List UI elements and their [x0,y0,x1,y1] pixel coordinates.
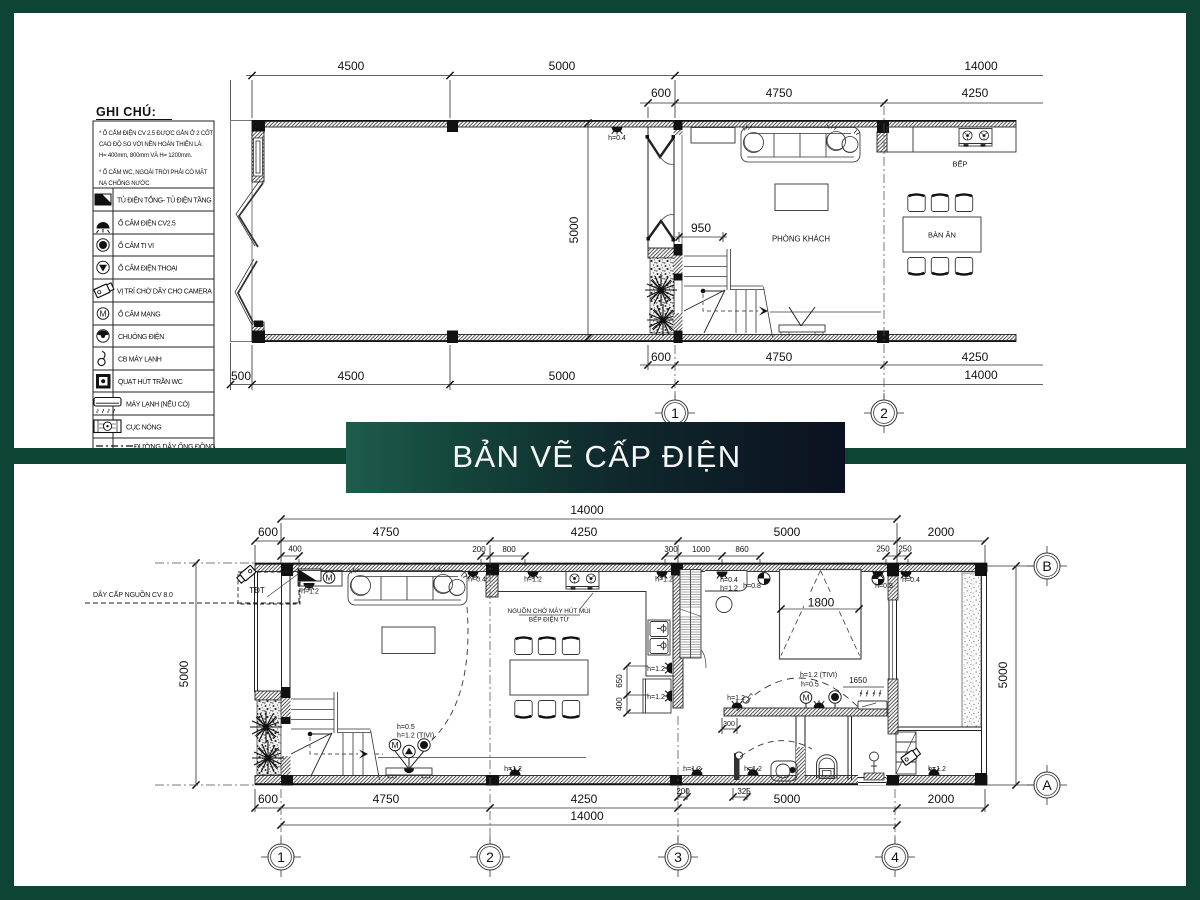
svg-text:h=0.4: h=0.4 [608,135,626,142]
svg-text:2000: 2000 [928,525,955,539]
svg-text:h=1.2: h=1.2 [647,694,665,701]
svg-text:h=0.4: h=0.4 [902,577,920,584]
svg-text:500: 500 [231,369,251,383]
svg-text:4750: 4750 [766,86,793,100]
svg-text:5000: 5000 [177,660,191,687]
svg-text:650: 650 [615,674,624,688]
svg-text:CAO ĐỘ SO VỚI NỀN HOÀN THIỆN L: CAO ĐỘ SO VỚI NỀN HOÀN THIỆN LÀ: [99,140,203,148]
svg-text:5000: 5000 [996,661,1010,688]
svg-text:14000: 14000 [570,809,604,823]
svg-text:1: 1 [671,405,679,421]
svg-text:1: 1 [277,849,285,865]
svg-text:Ổ CẮM MẠNG: Ổ CẮM MẠNG [118,310,160,319]
svg-text:1800: 1800 [808,596,835,610]
svg-text:* Ổ CẮM WC, NGOÀI TRỜI PHẢI CÓ: * Ổ CẮM WC, NGOÀI TRỜI PHẢI CÓ MẶT [99,168,208,176]
svg-text:h=0.4: h=0.4 [468,577,486,584]
svg-text:250: 250 [898,545,912,554]
svg-text:200: 200 [676,787,690,796]
svg-text:Ổ CẮM ĐIỆN THOẠI: Ổ CẮM ĐIỆN THOẠI [118,264,178,273]
svg-text:600: 600 [651,86,671,100]
svg-text:BẾP: BẾP [952,159,967,169]
svg-text:h=1.2 (TIVI): h=1.2 (TIVI) [397,733,434,740]
svg-text:h=0.5: h=0.5 [801,682,819,689]
svg-text:5000: 5000 [774,525,801,539]
svg-text:Ổ CẮM TI VI: Ổ CẮM TI VI [118,241,154,250]
svg-text:h=1.2: h=1.2 [504,766,522,773]
svg-text:250: 250 [876,545,890,554]
svg-text:4750: 4750 [766,350,793,364]
svg-text:860: 860 [735,545,749,554]
svg-text:h=1.2: h=1.2 [928,766,946,773]
svg-text:CB MÁY LẠNH: CB MÁY LẠNH [118,355,162,364]
svg-text:4250: 4250 [962,350,989,364]
svg-text:TĐT: TĐT [249,586,265,595]
svg-text:4750: 4750 [373,525,400,539]
svg-text:VỊ TRÍ CHỜ DÂY CHO CAMERA: VỊ TRÍ CHỜ DÂY CHO CAMERA [117,287,212,296]
svg-text:800: 800 [502,545,516,554]
svg-text:GHI CHÚ:: GHI CHÚ: [96,104,156,119]
svg-text:325: 325 [737,787,751,796]
svg-text:h=1.2: h=1.2 [727,695,745,702]
svg-text:4250: 4250 [571,525,598,539]
svg-text:300: 300 [723,721,735,728]
svg-text:5000: 5000 [567,216,581,243]
svg-text:h=0.5: h=0.5 [397,724,415,731]
svg-text:CHUÔNG ĐIỆN: CHUÔNG ĐIỆN [118,332,164,341]
svg-text:5000: 5000 [549,369,576,383]
svg-text:2: 2 [486,849,494,865]
svg-text:h=1.2: h=1.2 [655,577,673,584]
svg-text:300: 300 [664,545,678,554]
svg-text:h=0.8: h=0.8 [743,583,761,590]
svg-text:3: 3 [674,849,682,865]
svg-text:PHÒNG KHÁCH: PHÒNG KHÁCH [772,235,830,244]
svg-text:5000: 5000 [549,59,576,73]
svg-text:4250: 4250 [962,86,989,100]
svg-text:4: 4 [891,849,899,865]
svg-text:h=1.2: h=1.2 [301,589,319,596]
svg-text:A: A [1042,777,1052,793]
svg-text:H= 400mm, 800mm VÀ H= 1200mm.: H= 400mm, 800mm VÀ H= 1200mm. [99,152,192,159]
svg-text:400: 400 [615,697,624,711]
svg-text:200: 200 [472,545,486,554]
svg-text:B: B [1042,558,1051,574]
svg-text:h=1.2: h=1.2 [744,766,762,773]
svg-text:600: 600 [651,350,671,364]
svg-text:14000: 14000 [964,368,998,382]
svg-text:4500: 4500 [338,369,365,383]
svg-text:NẠ CHỐNG NƯỚC: NẠ CHỐNG NƯỚC [99,180,150,187]
svg-text:* Ổ CẮM ĐIỆN CV 2.5 ĐƯỢC GẮN Ở: * Ổ CẮM ĐIỆN CV 2.5 ĐƯỢC GẮN Ở 2 CỐT [99,129,213,137]
svg-text:h=1.2: h=1.2 [720,586,738,593]
svg-text:400: 400 [288,545,302,554]
svg-text:1650: 1650 [849,676,867,685]
svg-text:BÀN ĂN: BÀN ĂN [928,231,956,240]
svg-text:14000: 14000 [964,59,998,73]
svg-text:h=1.2: h=1.2 [683,766,701,773]
svg-text:h=0.8: h=0.8 [875,583,893,590]
svg-text:CỤC NÓNG: CỤC NÓNG [126,423,161,432]
svg-text:4250: 4250 [571,792,598,806]
svg-text:h=1.2: h=1.2 [524,577,542,584]
svg-text:5000: 5000 [774,792,801,806]
svg-text:950: 950 [691,221,711,235]
svg-text:BẢN VẼ CẤP ĐIỆN: BẢN VẼ CẤP ĐIỆN [452,439,741,474]
svg-text:600: 600 [258,792,278,806]
svg-text:h=1.2: h=1.2 [647,666,665,673]
svg-text:h=0.4: h=0.4 [720,577,738,584]
svg-text:14000: 14000 [570,503,604,517]
svg-text:1000: 1000 [692,545,710,554]
svg-text:4500: 4500 [338,59,365,73]
svg-text:4750: 4750 [373,792,400,806]
svg-text:600: 600 [258,525,278,539]
svg-text:2000: 2000 [928,792,955,806]
svg-text:2: 2 [880,405,888,421]
svg-text:Ổ CẮM ĐIỆN CV2.5: Ổ CẮM ĐIỆN CV2.5 [118,219,176,228]
